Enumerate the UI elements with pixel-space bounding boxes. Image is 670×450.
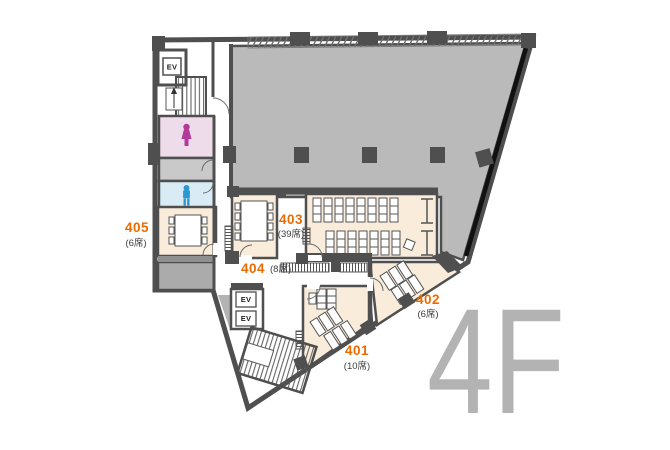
room-401-capacity: (10席): [344, 360, 370, 372]
room-401-number: 401: [345, 343, 369, 358]
elevator-label-1: EV: [241, 295, 251, 304]
storage-room: [158, 262, 214, 290]
room-405-capacity: (6席): [125, 237, 146, 249]
room-404-number: 404: [241, 261, 265, 276]
room-404-table: [235, 201, 273, 241]
room-404-capacity: (8席): [270, 263, 291, 275]
storage-room-counter: [158, 256, 214, 262]
room-405-table: [169, 215, 207, 246]
elevator-label-2: EV: [241, 314, 251, 323]
restroom-vestibule: [159, 158, 214, 181]
elevator-label-top: EV: [167, 63, 177, 72]
room-403-number: 403: [279, 212, 303, 227]
floor-label: 4F: [427, 277, 565, 445]
room-405-number: 405: [125, 220, 149, 235]
floor-plan-page: EV: [0, 0, 670, 450]
floor-plan-canvas: EV: [0, 0, 670, 450]
room-403-capacity: (39席): [278, 228, 304, 240]
